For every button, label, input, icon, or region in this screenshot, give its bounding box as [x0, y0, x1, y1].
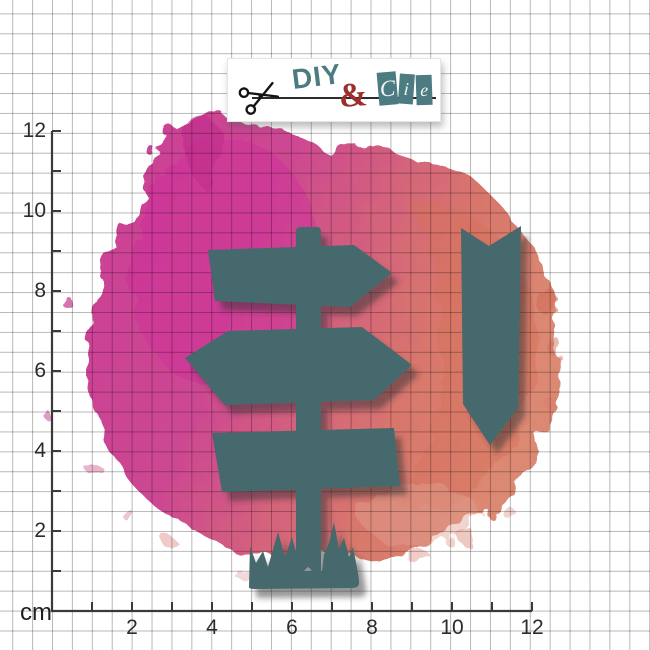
sign-panel-top-arrow: [208, 245, 392, 307]
scissors-icon: [234, 71, 285, 121]
product-image-canvas: 2468101224681012 cm: [0, 0, 650, 650]
sign-panel-middle-double-point: [185, 327, 412, 405]
cie-tile-e: e: [416, 75, 433, 106]
chevron-banner-marker: [461, 226, 521, 445]
brand-name-diy: DIY: [290, 58, 343, 96]
brand-logo: DIY & C i e: [227, 58, 441, 122]
cie-tile-i: i: [398, 74, 415, 105]
brand-name-cie: C i e: [378, 72, 432, 105]
cie-tile-c: C: [377, 71, 399, 106]
brand-ampersand: &: [338, 76, 369, 116]
sign-panel-bottom-rectangle: [212, 428, 400, 492]
